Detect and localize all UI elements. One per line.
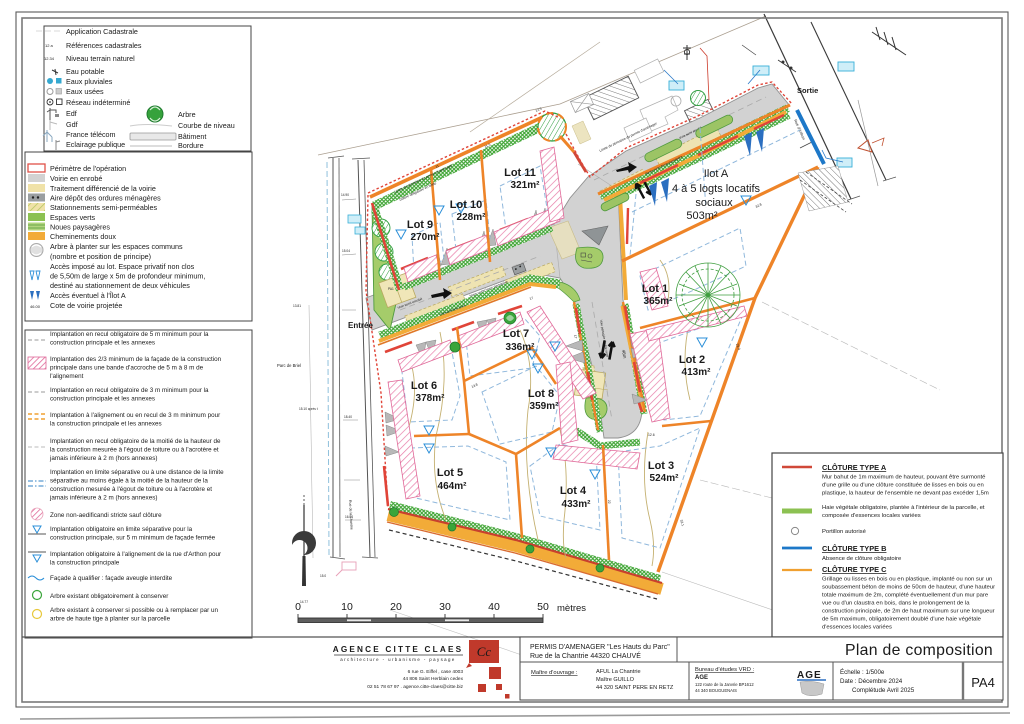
svg-text:Arbre existant à conserver si: Arbre existant à conserver si possible o…: [50, 607, 218, 614]
svg-text:Parc de Briel: Parc de Briel: [277, 363, 301, 368]
svg-text:Implantation obligatoire en li: Implantation obligatoire en limite sépar…: [50, 526, 193, 533]
svg-text:Complétude Avril 2025: Complétude Avril 2025: [852, 687, 915, 694]
svg-text:construction mesurée à l'égout: construction mesurée à l'égout de toitur…: [50, 486, 212, 493]
svg-text:228m²: 228m²: [457, 212, 487, 223]
svg-text:PERMIS D'AMENAGER "Les Hauts d: PERMIS D'AMENAGER "Les Hauts du Parc": [530, 644, 670, 651]
svg-text:40: 40: [488, 601, 500, 613]
svg-text:Courbe de niveau: Courbe de niveau: [178, 121, 235, 130]
svg-text:vue ou d'un claustra en bois,: vue ou d'un claustra en bois, dans le pr…: [822, 601, 970, 607]
svg-text:Cote de voirie projetée: Cote de voirie projetée: [50, 301, 122, 310]
svg-text:principale dans une bande d'ac: principale dans une bande d'accroche de …: [50, 365, 204, 372]
svg-text:44 340 BOUGUENAIS: 44 340 BOUGUENAIS: [695, 688, 737, 693]
svg-text:4 à 5 logts locatifs: 4 à 5 logts locatifs: [672, 183, 761, 195]
svg-text:plastique, la hauteur de l'ens: plastique, la hauteur de l'ensemble ne d…: [822, 491, 989, 497]
svg-text:Lot 11: Lot 11: [504, 167, 536, 179]
svg-text:Stationnements semi-perméables: Stationnements semi-perméables: [50, 203, 157, 212]
svg-text:construction principale, sur 5: construction principale, sur 5 m minimum…: [50, 535, 216, 542]
svg-text:Lot 10: Lot 10: [450, 199, 482, 211]
svg-text:378m²: 378m²: [416, 393, 446, 404]
svg-text:Gdf: Gdf: [66, 120, 78, 129]
svg-text:Maître GUILLO: Maître GUILLO: [596, 677, 635, 683]
svg-text:Eaux usées: Eaux usées: [66, 87, 104, 96]
svg-text:Bureau d'études VRD :: Bureau d'études VRD :: [695, 667, 754, 673]
svg-text:321m²: 321m²: [511, 180, 541, 191]
svg-text:CLÔTURE TYPE C: CLÔTURE TYPE C: [822, 565, 887, 574]
svg-text:Façade à qualifier : façade av: Façade à qualifier : façade aveugle inte…: [50, 575, 173, 582]
svg-text:Eaux pluviales: Eaux pluviales: [66, 77, 113, 86]
svg-text:Références cadastrales: Références cadastrales: [66, 41, 142, 50]
svg-text:15.04: 15.04: [342, 249, 350, 253]
svg-text:de 5,50m de large x 5m de prof: de 5,50m de large x 5m de profondeur min…: [50, 272, 205, 281]
svg-text:Implantation des 2/3 minimum d: Implantation des 2/3 minimum de la façad…: [50, 356, 222, 363]
svg-text:jamais inférieure à 2 m (hors: jamais inférieure à 2 m (hors annexes): [49, 455, 157, 462]
svg-text:15.10 après t: 15.10 après t: [299, 407, 318, 411]
svg-text:Lot 2: Lot 2: [679, 354, 705, 366]
svg-text:Lot 5: Lot 5: [437, 467, 463, 479]
svg-text:Grillage ou lisses en bois ou: Grillage ou lisses en bois ou en plastiq…: [822, 577, 992, 583]
svg-text:AGE: AGE: [695, 675, 708, 681]
svg-text:13.81: 13.81: [293, 304, 301, 308]
svg-text:Cc: Cc: [477, 644, 492, 659]
svg-text:construction principale et les: construction principale et les annexes: [50, 396, 155, 403]
svg-text:02 51 78 67 97 . agence.citte-: 02 51 78 67 97 . agence.citte-claes@citt…: [367, 684, 463, 690]
svg-text:0: 0: [295, 601, 301, 613]
svg-text:Lot 6: Lot 6: [411, 380, 437, 392]
svg-text:Edf: Edf: [66, 109, 77, 118]
svg-text:270m²: 270m²: [411, 232, 441, 243]
svg-text:413m²: 413m²: [682, 367, 712, 378]
svg-text:Mur bahut de 1m maximum de hau: Mur bahut de 1m maximum de hauteur, pouv…: [822, 475, 986, 481]
svg-text:22: 22: [607, 500, 611, 504]
svg-text:Bordure: Bordure: [178, 141, 204, 150]
svg-text:de 5m maximum, obligatoirement: de 5m maximum, obligatoirement doublé d'…: [822, 617, 982, 623]
svg-text:Accès imposé au lot. Espace pr: Accès imposé au lot. Espace privatif non…: [50, 262, 195, 271]
svg-text:Arbre existant obligatoirement: Arbre existant obligatoirement à conserv…: [50, 593, 168, 600]
svg-text:AFUL La Chantrie: AFUL La Chantrie: [596, 669, 641, 675]
svg-text:Lot 4: Lot 4: [560, 485, 587, 497]
svg-text:Implantation en recul obligato: Implantation en recul obligatoire de 5 m…: [50, 331, 209, 338]
svg-text:Cheminements doux: Cheminements doux: [50, 232, 116, 241]
svg-text:14.90: 14.90: [341, 193, 349, 197]
svg-text:architecture - urbanisme - pay: architecture - urbanisme - paysage: [340, 657, 455, 662]
svg-text:Échelle : 1/500e: Échelle : 1/500e: [840, 669, 885, 676]
svg-text:Implantation en recul obligato: Implantation en recul obligatoire de la …: [50, 438, 221, 445]
svg-text:Périmètre de l'opération: Périmètre de l'opération: [50, 164, 126, 173]
svg-text:la construction principale: la construction principale: [50, 560, 120, 567]
svg-text:mètres: mètres: [557, 603, 586, 614]
svg-text:Noues paysagères: Noues paysagères: [50, 223, 110, 232]
svg-text:Entrée: Entrée: [348, 321, 373, 330]
svg-text:14.77: 14.77: [300, 600, 308, 604]
svg-text:Lot 3: Lot 3: [648, 460, 674, 472]
svg-text:Arbre à planter sur les espace: Arbre à planter sur les espaces communs: [50, 242, 183, 251]
svg-text:d'essences locales variées: d'essences locales variées: [822, 625, 892, 631]
svg-text:6 rue G. Eiffel , case 4003: 6 rue G. Eiffel , case 4003: [408, 669, 464, 675]
svg-text:Haie végétale obligatoire, pla: Haie végétale obligatoire, plantée à l'i…: [822, 505, 985, 511]
svg-text:d'une grille ou d'une clôture: d'une grille ou d'une clôture constituée…: [822, 483, 984, 489]
svg-text:(nombre et position de princip: (nombre et position de principe): [50, 252, 151, 261]
svg-text:Accès éventuel à l'Îlot A: Accès éventuel à l'Îlot A: [50, 291, 126, 300]
svg-text:15.0: 15.0: [320, 574, 326, 578]
svg-text:Ilot A: Ilot A: [704, 168, 729, 180]
svg-text:Eau potable: Eau potable: [66, 67, 104, 76]
svg-text:France télécom: France télécom: [66, 130, 116, 139]
svg-text:336m²: 336m²: [506, 342, 536, 353]
svg-text:sociaux: sociaux: [695, 197, 733, 209]
svg-text:destiné au stationnement de de: destiné au stationnement de deux véhicul…: [50, 281, 190, 290]
svg-text:Implantation à l'alignement ou: Implantation à l'alignement ou en recul …: [50, 412, 220, 419]
svg-text:AGENCE CITTE CLAES: AGENCE CITTE CLAES: [333, 645, 464, 654]
svg-text:CLÔTURE TYPE A: CLÔTURE TYPE A: [822, 463, 887, 472]
svg-text:Eclairage publique: Eclairage publique: [66, 140, 125, 149]
svg-text:Plan de composition: Plan de composition: [845, 642, 993, 659]
svg-text:122 route de la Janvrie BP1612: 122 route de la Janvrie BP1612: [695, 682, 754, 687]
svg-text:construction principale, de 2m: construction principale, de 2m de haut m…: [822, 609, 995, 615]
svg-text:Traitement différencié de la v: Traitement différencié de la voirie: [50, 184, 156, 193]
svg-text:Portillon autorisé: Portillon autorisé: [822, 529, 867, 535]
svg-text:44 806 Saint Herblain cedex: 44 806 Saint Herblain cedex: [403, 676, 464, 682]
svg-text:503m²: 503m²: [686, 210, 718, 222]
svg-text:Maître d'ouvrage :: Maître d'ouvrage :: [531, 670, 578, 676]
svg-text:Niveau terrain naturel: Niveau terrain naturel: [66, 54, 135, 63]
svg-text:soubassement béton de moins de: soubassement béton de moins de 50cm de h…: [822, 585, 995, 591]
svg-text:Arbre: Arbre: [178, 110, 196, 119]
svg-text:30: 30: [439, 601, 451, 613]
svg-text:jamais inférieure à 2 m (hors: jamais inférieure à 2 m (hors annexes): [49, 495, 157, 502]
svg-text:Lot 9: Lot 9: [407, 219, 433, 231]
svg-text:12 a: 12 a: [45, 43, 54, 48]
svg-text:l'alignement: l'alignement: [50, 373, 84, 380]
svg-text:Espaces verts: Espaces verts: [50, 213, 96, 222]
svg-text:359m²: 359m²: [530, 401, 560, 412]
svg-text:433m²: 433m²: [562, 499, 592, 510]
svg-text:totale maximum de 2m, complété: totale maximum de 2m, complété éventuell…: [822, 593, 989, 599]
svg-text:arbre de haute tige à planter: arbre de haute tige à planter sur la par…: [50, 616, 171, 623]
svg-text:Implantation obligatoire à l'a: Implantation obligatoire à l'alignement …: [50, 551, 221, 558]
svg-text:10: 10: [341, 601, 353, 613]
svg-text:Implantation en limite séparat: Implantation en limite séparative ou à u…: [50, 469, 224, 476]
svg-text:séparative au moins égale à la: séparative au moins égale à la moitié de…: [50, 478, 208, 485]
svg-text:Sortie: Sortie: [797, 86, 818, 95]
svg-text:composée d'essences locales va: composée d'essences locales variées: [822, 513, 921, 519]
svg-text:Voirie en enrobé: Voirie en enrobé: [50, 174, 102, 183]
svg-text:44 320 SAINT PERE EN RETZ: 44 320 SAINT PERE EN RETZ: [596, 685, 674, 691]
svg-text:Lot 8: Lot 8: [528, 388, 554, 400]
svg-text:Lot 7: Lot 7: [503, 328, 529, 340]
svg-text:50: 50: [537, 601, 549, 613]
svg-text:Rue de la Chantrie 44320 CHAUV: Rue de la Chantrie 44320 CHAUVÉ: [530, 651, 641, 660]
svg-text:construction principale et les: construction principale et les annexes: [50, 340, 155, 347]
svg-text:CLÔTURE TYPE B: CLÔTURE TYPE B: [822, 544, 886, 553]
svg-text:12.34: 12.34: [44, 56, 55, 61]
svg-text:Implantation en recul obligato: Implantation en recul obligatoire de 3 m…: [50, 387, 209, 394]
svg-text:la construction mesurée à l'ég: la construction mesurée à l'égout de toi…: [50, 447, 219, 454]
svg-text:la construction principale et: la construction principale et les annexe…: [50, 421, 162, 428]
svg-text:Absence de clôture obligatoire: Absence de clôture obligatoire: [822, 556, 902, 562]
svg-text:18.40: 18.40: [344, 415, 352, 419]
svg-text:Bâtiment: Bâtiment: [178, 132, 206, 141]
svg-text:524m²: 524m²: [650, 473, 680, 484]
svg-text:46.00: 46.00: [30, 304, 41, 309]
svg-text:Zone non-aedificandi stricte s: Zone non-aedificandi stricte sauf clôtur…: [50, 512, 162, 519]
svg-text:12.6: 12.6: [648, 433, 655, 437]
svg-text:PA4: PA4: [971, 675, 995, 690]
svg-text:PA1: PA1: [388, 287, 394, 291]
svg-text:Date : Décembre 2024: Date : Décembre 2024: [840, 678, 903, 685]
svg-text:Application Cadastrale: Application Cadastrale: [66, 27, 138, 36]
svg-text:Aire dépôt des ordures ménagèr: Aire dépôt des ordures ménagères: [50, 194, 161, 203]
svg-text:20: 20: [390, 601, 402, 613]
svg-text:464m²: 464m²: [438, 481, 468, 492]
svg-text:365m²: 365m²: [644, 296, 674, 307]
svg-text:Réseau indéterminé: Réseau indéterminé: [66, 98, 130, 107]
svg-text:Lot 1: Lot 1: [642, 283, 668, 295]
